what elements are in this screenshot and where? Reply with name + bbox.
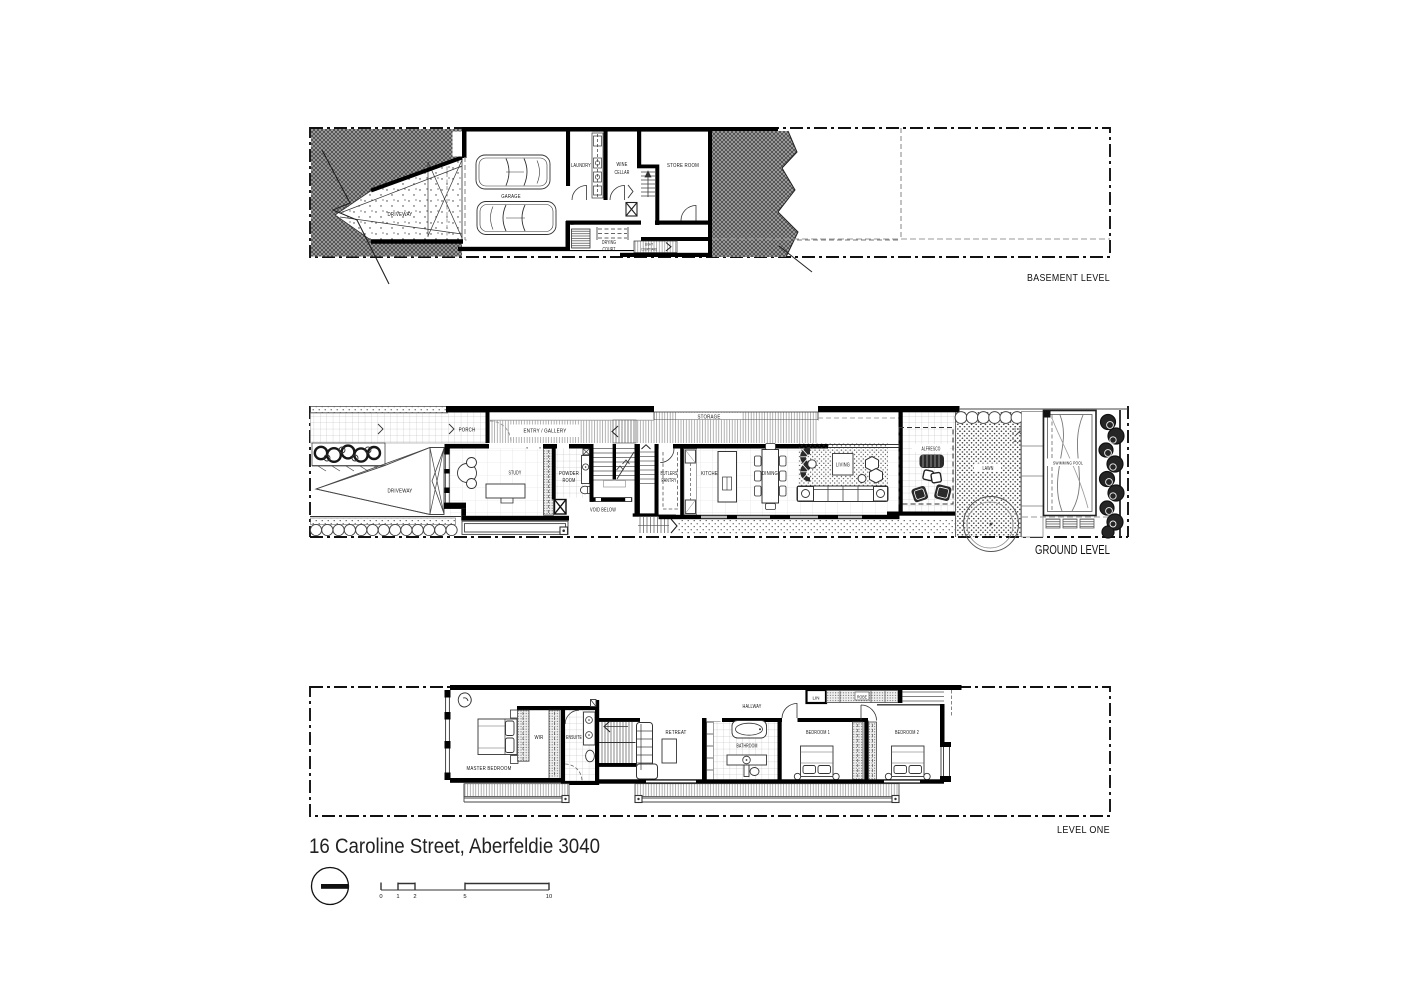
svg-text:PORCH: PORCH [459,428,476,434]
svg-text:ENSUITE: ENSUITE [566,735,582,741]
svg-text:VOID BELOW: VOID BELOW [590,508,616,514]
svg-text:CELLAR: CELLAR [615,170,630,176]
svg-text:LIVING: LIVING [836,463,850,469]
svg-text:WIR: WIR [535,735,544,741]
svg-text:LIGHT: LIGHT [645,243,654,247]
svg-text:PANTRY: PANTRY [662,478,677,484]
svg-text:ENTRY / GALLERY: ENTRY / GALLERY [524,429,567,435]
svg-text:BATHROOM: BATHROOM [737,744,758,750]
svg-text:BASEMENT LEVEL: BASEMENT LEVEL [1027,272,1110,284]
svg-text:LAWN: LAWN [983,466,994,472]
svg-text:LAUNDRY: LAUNDRY [571,163,591,169]
svg-text:WINE: WINE [617,162,628,168]
svg-text:DRYING: DRYING [602,240,616,246]
svg-text:HALLWAY: HALLWAY [743,704,762,710]
svg-text:COURTYARD: COURTYARD [641,248,657,252]
svg-text:2: 2 [413,894,416,900]
svg-text:BUTLERS: BUTLERS [661,471,678,477]
svg-text:ROBE: ROBE [857,694,867,699]
svg-text:MASTER BEDROOM: MASTER BEDROOM [467,766,512,772]
svg-text:LEVEL ONE: LEVEL ONE [1057,824,1110,836]
svg-text:STUDY: STUDY [509,471,522,477]
svg-text:GARAGE: GARAGE [501,194,521,200]
svg-text:BEDROOM 2: BEDROOM 2 [895,730,919,736]
svg-text:DINING: DINING [762,471,778,477]
svg-text:POWDER: POWDER [559,471,579,477]
svg-text:ROOM: ROOM [563,478,576,484]
svg-text:DRIVEWAY: DRIVEWAY [388,489,413,495]
svg-text:SWIMMING POOL: SWIMMING POOL [1053,461,1083,467]
svg-text:1: 1 [396,894,399,900]
svg-text:RETREAT: RETREAT [666,730,687,736]
svg-text:LIN: LIN [813,696,820,701]
svg-text:BEDROOM 1: BEDROOM 1 [806,730,830,736]
svg-text:STORE ROOM: STORE ROOM [667,163,699,169]
svg-text:COURT: COURT [603,247,616,253]
svg-text:5: 5 [463,894,466,900]
svg-text:DRIVEWAY: DRIVEWAY [388,212,413,218]
svg-text:GROUND LEVEL: GROUND LEVEL [1035,543,1110,557]
svg-text:16 Caroline Street, Aberfeldie: 16 Caroline Street, Aberfeldie 3040 [309,835,600,858]
svg-text:STORAGE: STORAGE [698,414,721,420]
svg-text:0: 0 [379,894,382,900]
svg-text:10: 10 [546,894,552,900]
svg-text:ALFRESCO: ALFRESCO [922,447,941,453]
